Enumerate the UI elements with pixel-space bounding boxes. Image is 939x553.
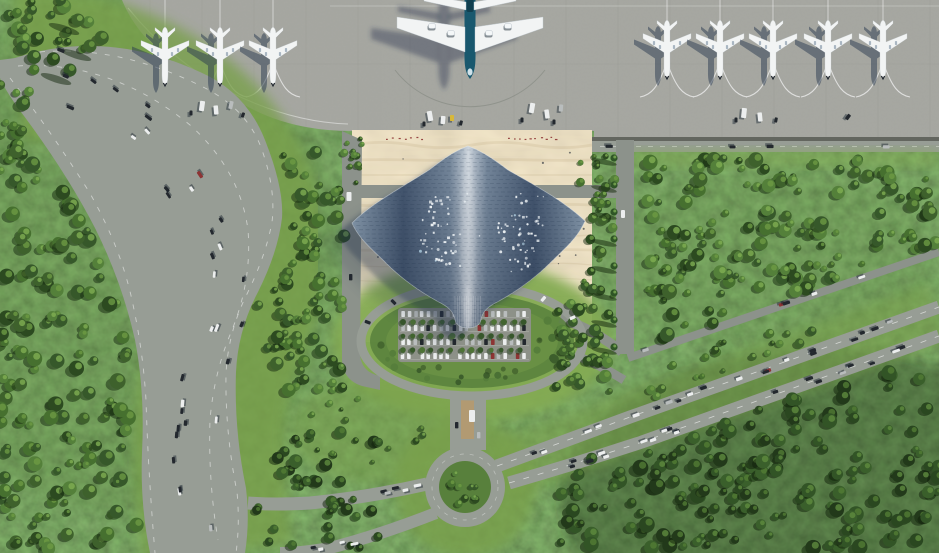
aerial-render-stage [0, 0, 939, 553]
airport-aerial-scene [0, 0, 939, 553]
